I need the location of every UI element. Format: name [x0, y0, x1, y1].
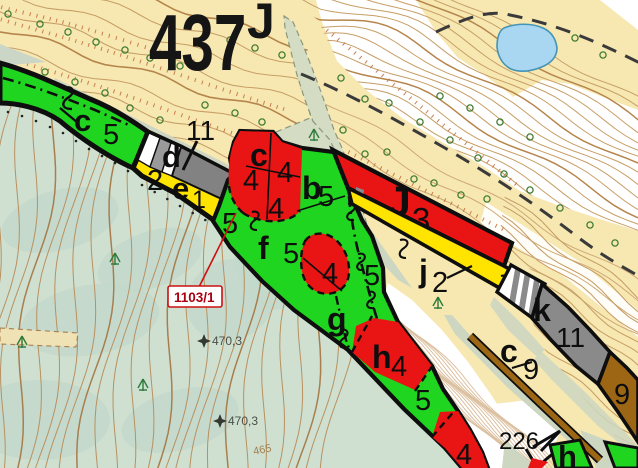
svg-text:5: 5: [103, 119, 119, 151]
svg-text:4: 4: [243, 165, 259, 197]
svg-text:4: 4: [268, 193, 284, 225]
svg-text:k: k: [533, 292, 551, 328]
svg-text:5: 5: [283, 238, 299, 270]
svg-text:5: 5: [364, 260, 380, 292]
svg-text:h: h: [558, 439, 577, 468]
svg-text:h: h: [372, 339, 392, 375]
svg-text:c: c: [500, 333, 518, 369]
svg-text:f: f: [258, 230, 269, 266]
svg-text:4: 4: [391, 351, 407, 383]
svg-text:226: 226: [499, 428, 539, 455]
svg-text:1: 1: [192, 186, 206, 214]
svg-text:5: 5: [415, 385, 431, 417]
svg-text:4: 4: [456, 439, 472, 468]
svg-text:4: 4: [277, 157, 293, 189]
svg-text:9: 9: [614, 379, 630, 411]
svg-text:11: 11: [186, 115, 215, 146]
svg-text:J: J: [247, 0, 275, 49]
svg-text:g: g: [327, 301, 347, 337]
svg-text:j: j: [418, 253, 428, 289]
svg-text:9: 9: [523, 354, 539, 386]
svg-text:d: d: [162, 139, 181, 174]
svg-text:e: e: [172, 171, 189, 206]
svg-text:5: 5: [318, 181, 334, 213]
svg-text:11: 11: [556, 322, 585, 353]
svg-text:437: 437: [149, 0, 246, 87]
svg-text:1103/1: 1103/1: [174, 290, 215, 305]
svg-text:470,3: 470,3: [228, 414, 258, 428]
svg-text:470,3: 470,3: [212, 334, 242, 348]
svg-text:2: 2: [147, 165, 163, 197]
svg-text:4: 4: [322, 258, 338, 290]
svg-text:2: 2: [432, 267, 448, 299]
